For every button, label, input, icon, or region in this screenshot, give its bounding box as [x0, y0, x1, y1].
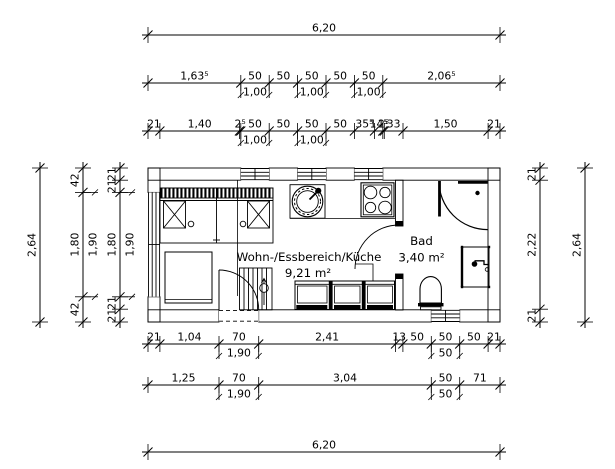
- washbasin: [461, 246, 490, 288]
- dim-label: 2,64: [571, 233, 584, 257]
- dim-label: 50: [248, 118, 262, 131]
- dim-label: 70: [232, 331, 246, 344]
- basin-drain: [472, 261, 478, 267]
- dimension-chains: 6,201,63⁵50505050502,06⁵1,001,001,00211,…: [26, 22, 594, 461]
- toilet: [418, 277, 444, 310]
- dim-label: 1,04: [177, 331, 201, 344]
- dim-label: 33: [387, 118, 401, 131]
- shower: [439, 181, 488, 230]
- dim-label: 6,20: [312, 439, 336, 452]
- kitchen-sink: [290, 185, 325, 219]
- dim-chain-top-openings: 1,63⁵50505050502,06⁵1,001,001,00: [142, 70, 506, 99]
- room-area-living: 9,21 m²: [285, 266, 331, 280]
- dim-label: 21: [106, 296, 119, 310]
- dim-label: 21: [106, 309, 119, 323]
- dim-label: 1,90: [227, 388, 251, 401]
- stair-walk-line: [260, 279, 269, 306]
- dim-label: 1,00: [357, 86, 381, 99]
- dim-label: 1,80: [69, 232, 82, 256]
- dim-label: 21: [147, 331, 161, 344]
- dim-label: 50: [439, 347, 453, 360]
- dim-label: 50: [333, 118, 347, 131]
- dim-chain-right-detail: 212,2221: [526, 162, 549, 328]
- dim-label: 50: [467, 331, 481, 344]
- toilet-base: [418, 303, 444, 306]
- dim-label: 21: [487, 118, 501, 131]
- dim-label: 50: [439, 331, 453, 344]
- dim-chain-top-detail: 211,402⁵5050505035⁵14⁵2⁵331,50211,001,00: [142, 118, 506, 147]
- window-top-2: [298, 168, 326, 180]
- shower-screen: [439, 181, 488, 230]
- burner: [379, 201, 392, 214]
- room-area-bath: 3,40 m²: [398, 251, 444, 265]
- floor-plan-page: Wohn-/Essbereich/Küche 9,21 m² Bad 3,40 …: [0, 0, 615, 469]
- dim-chain-bottom-openings: 1,25703,0450711,9050: [142, 372, 506, 401]
- dim-label: 71: [473, 372, 487, 385]
- kitchen-base-cabinets: [295, 281, 395, 310]
- dim-label: 1,50: [434, 118, 458, 131]
- table: [165, 252, 212, 303]
- dim-label: 1,00: [300, 86, 324, 99]
- dim-label: 1,00: [243, 134, 267, 147]
- window-top-1: [241, 168, 269, 180]
- dim-chain-top-overall: 6,20: [142, 22, 506, 44]
- window-left: [148, 192, 160, 296]
- dim-label: 2,06⁵: [427, 70, 455, 83]
- door-jamb-bottom: [396, 274, 404, 279]
- dim-label: 21: [147, 118, 161, 131]
- dim-label: 42: [69, 303, 82, 317]
- dim-chain-left-overall: 2,64: [26, 162, 49, 328]
- toilet-bowl: [420, 277, 441, 303]
- dim-label: 1,00: [300, 134, 324, 147]
- dim-label: 50: [410, 331, 424, 344]
- dim-label: 50: [439, 388, 453, 401]
- burner: [364, 186, 377, 199]
- double-bed: [160, 188, 273, 243]
- burner: [365, 202, 375, 212]
- stove: [361, 183, 394, 217]
- dim-label: 1,90: [87, 232, 100, 256]
- bath-door-leaf: [355, 264, 373, 281]
- dim-label: 50: [362, 70, 376, 83]
- dim-label: 21: [106, 179, 119, 193]
- dim-label: 42: [69, 173, 82, 187]
- dim-label: 50: [305, 70, 319, 83]
- dim-label: 2⁵: [234, 118, 245, 131]
- dim-label: 1,90: [124, 232, 137, 256]
- dim-label: 70: [232, 372, 246, 385]
- dim-label: 50: [439, 372, 453, 385]
- interior-wall: [396, 180, 404, 310]
- dim-label: 50: [277, 70, 291, 83]
- dim-label: 2,41: [315, 331, 339, 344]
- dim-label: 50: [333, 70, 347, 83]
- dim-label: 1,25: [171, 372, 195, 385]
- shower-head: [475, 191, 479, 195]
- window-bath: [431, 310, 459, 322]
- dim-label: 50: [248, 70, 262, 83]
- dim-label: 50: [305, 118, 319, 131]
- dim-label: 1,90: [227, 347, 251, 360]
- dim-chain-left-opening: 421,80421,90: [69, 162, 100, 328]
- dim-chain-bottom-detail: 211,04702,4113505050211,9050: [142, 331, 506, 360]
- dim-label: 6,20: [312, 22, 336, 35]
- floor-plan-canvas: Wohn-/Essbereich/Küche 9,21 m² Bad 3,40 …: [0, 0, 615, 469]
- room-label-living: Wohn-/Essbereich/Küche: [237, 250, 382, 264]
- burner: [380, 187, 390, 197]
- room-label-bath: Bad: [410, 234, 433, 248]
- dim-label: 1,00: [243, 86, 267, 99]
- dim-label: 2,22: [526, 233, 539, 257]
- dim-label: 3,04: [333, 372, 357, 385]
- dim-chain-left-detail: 21211,8021211,90: [106, 162, 137, 328]
- dim-chain-bottom-overall: 6,20: [142, 439, 506, 461]
- dim-chain-right-overall: 2,64: [571, 162, 594, 328]
- dim-label: 2,64: [26, 233, 39, 257]
- dim-label: 21: [526, 167, 539, 181]
- window-top-3: [354, 168, 382, 180]
- dim-label: 50: [277, 118, 291, 131]
- dim-label: 21: [106, 167, 119, 181]
- dim-label: 21: [487, 331, 501, 344]
- stairs: [240, 268, 273, 310]
- dim-label: 1,40: [188, 118, 212, 131]
- dim-label: 13: [392, 331, 406, 344]
- dim-label: 1,80: [106, 232, 119, 256]
- dim-label: 21: [526, 309, 539, 323]
- dim-label: 1,63⁵: [180, 70, 208, 83]
